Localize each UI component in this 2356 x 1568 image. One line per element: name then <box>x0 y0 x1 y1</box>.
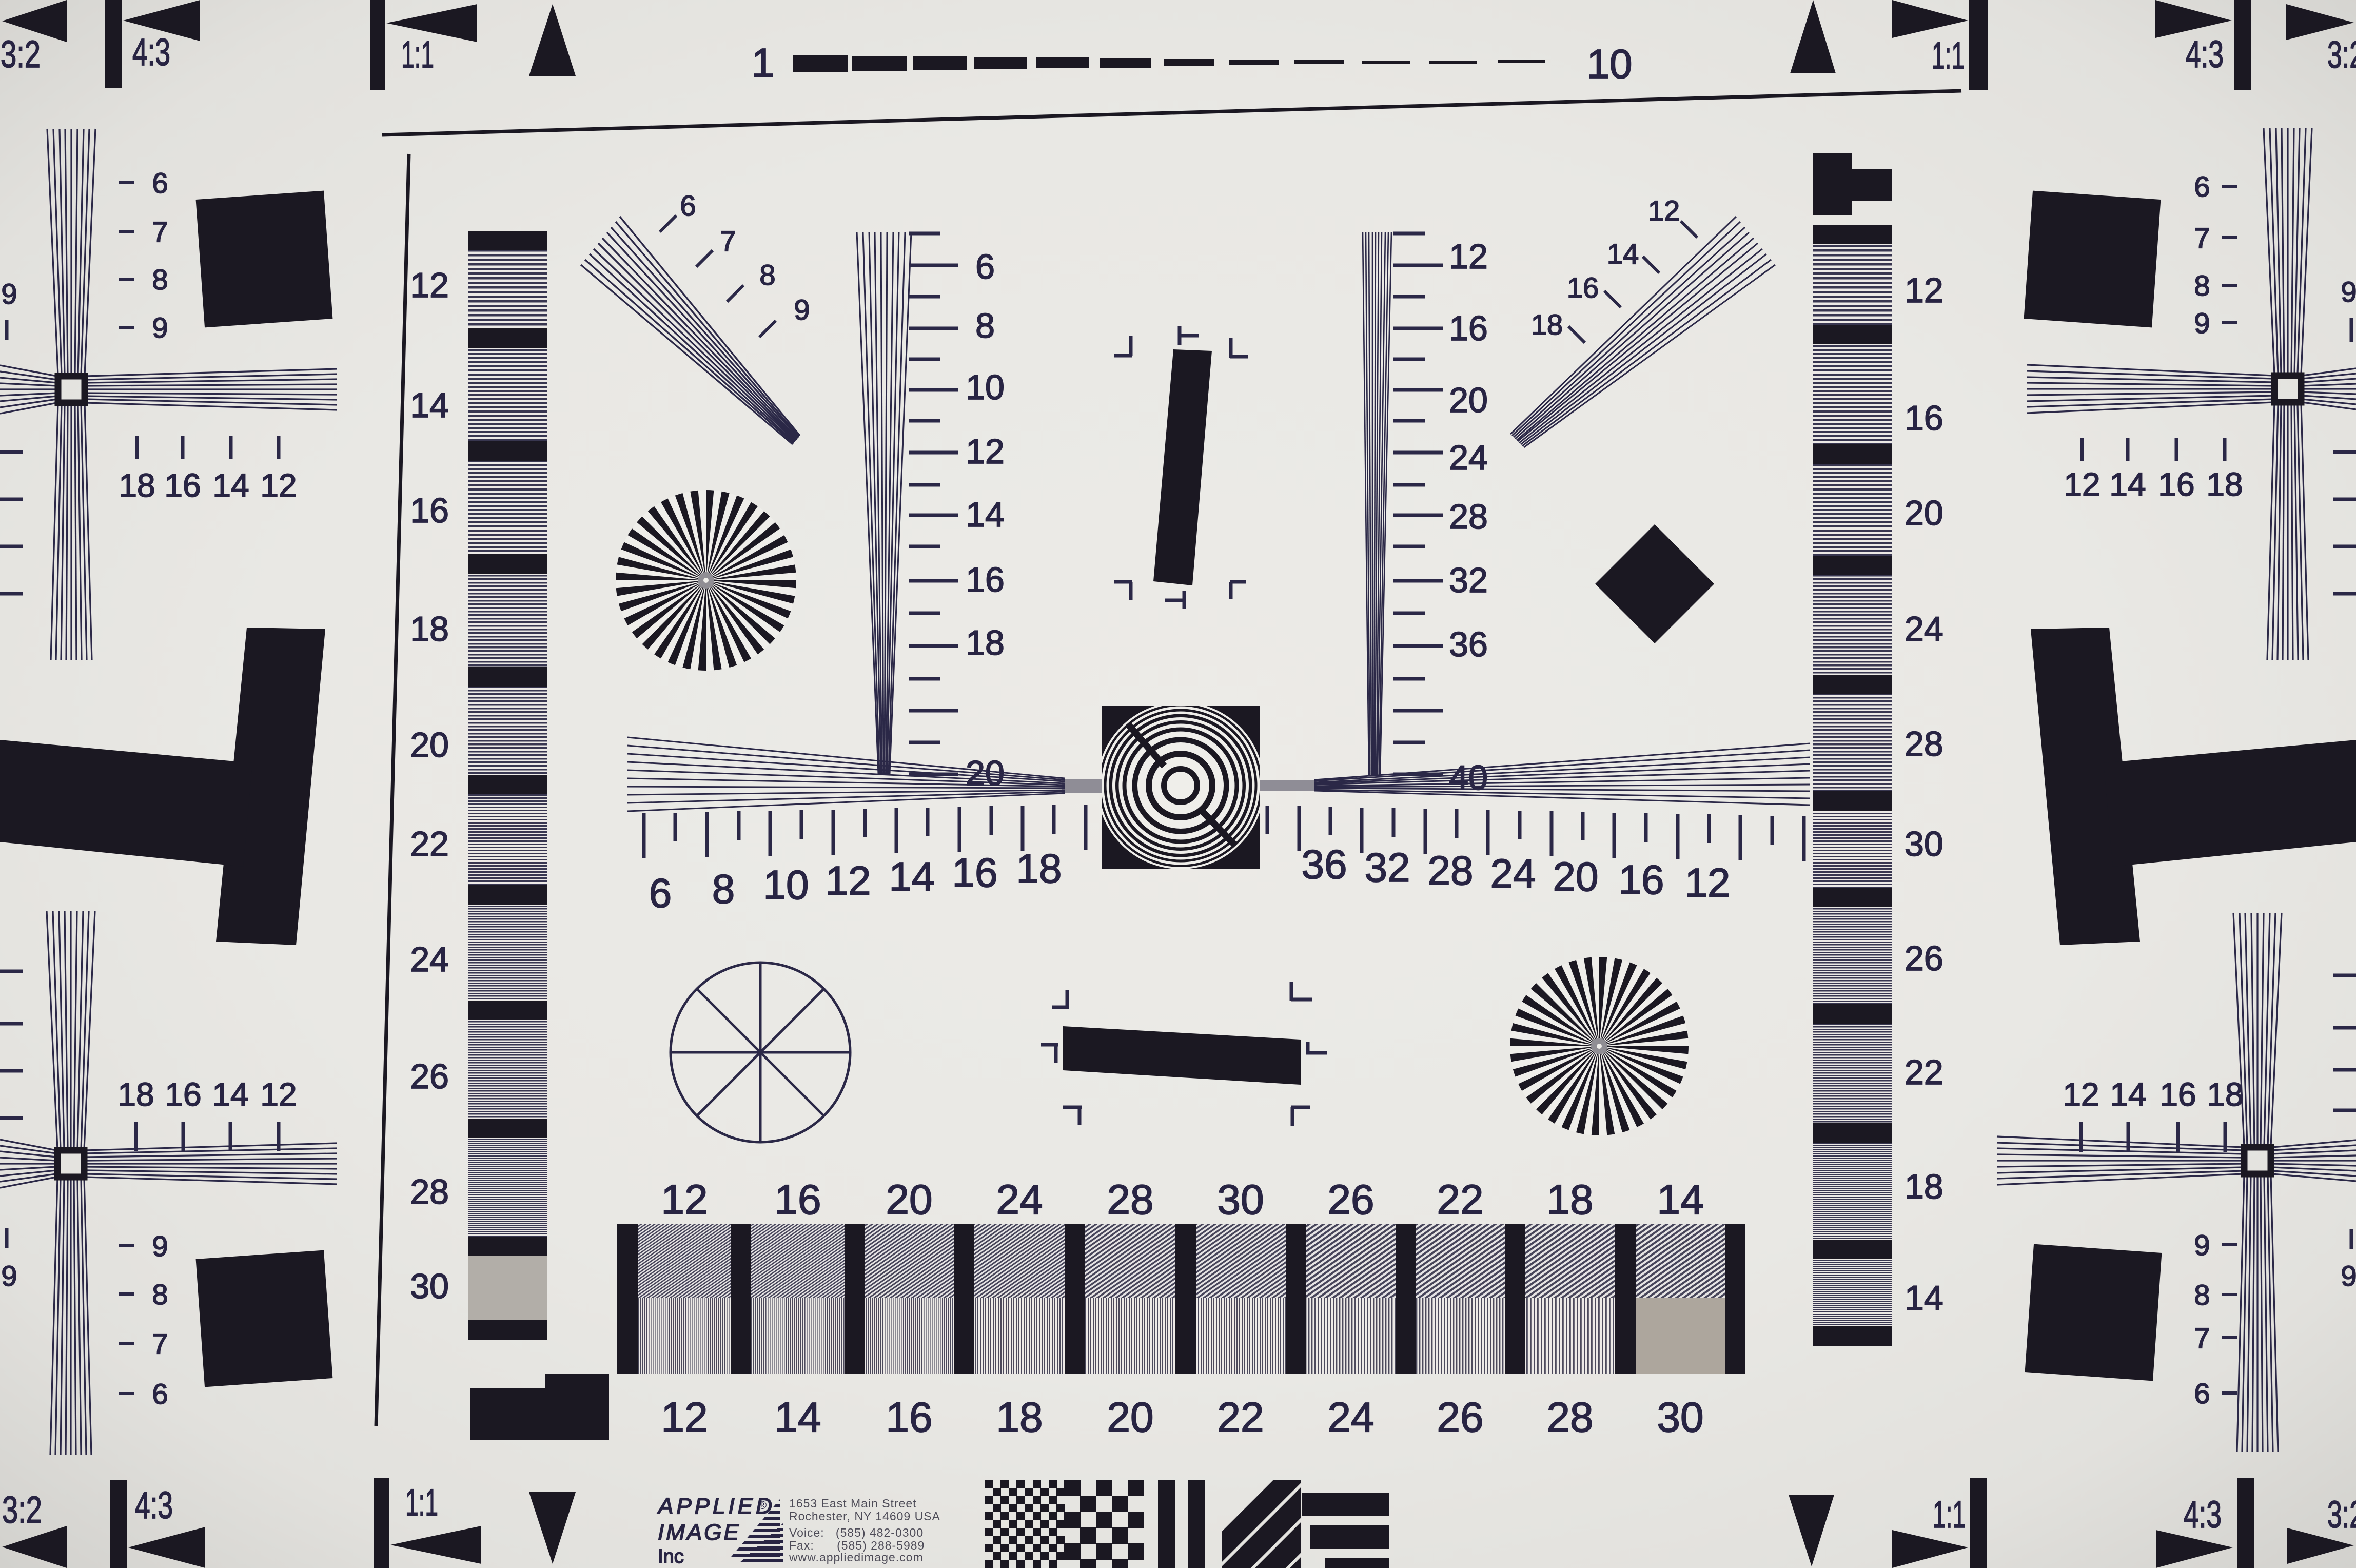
svg-text:26: 26 <box>1905 939 1943 978</box>
svg-text:14: 14 <box>212 1076 248 1113</box>
svg-text:30: 30 <box>410 1267 449 1306</box>
svg-text:14: 14 <box>1607 238 1639 270</box>
svg-text:7: 7 <box>720 225 736 257</box>
svg-text:8: 8 <box>975 306 995 345</box>
svg-text:9: 9 <box>152 311 168 344</box>
svg-text:14: 14 <box>1905 1279 1943 1318</box>
svg-text:24: 24 <box>996 1177 1043 1223</box>
svg-text:16: 16 <box>165 1076 201 1113</box>
svg-text:6: 6 <box>152 167 168 199</box>
svg-text:28: 28 <box>1449 497 1488 536</box>
svg-text:1: 1 <box>752 40 775 86</box>
svg-text:www.appliedimage.com: www.appliedimage.com <box>789 1551 924 1564</box>
svg-text:9: 9 <box>794 293 810 326</box>
svg-text:28: 28 <box>1428 848 1474 893</box>
svg-text:1653 East Main Street: 1653 East Main Street <box>789 1497 917 1510</box>
svg-text:18: 18 <box>119 467 155 504</box>
svg-text:18: 18 <box>410 610 449 649</box>
svg-text:36: 36 <box>1449 625 1488 664</box>
svg-text:16: 16 <box>886 1394 932 1441</box>
svg-text:APPLIED: APPLIED <box>657 1494 775 1519</box>
svg-text:22: 22 <box>1905 1053 1943 1092</box>
svg-text:4:3: 4:3 <box>132 31 170 73</box>
svg-text:9: 9 <box>2341 1260 2356 1292</box>
svg-text:18: 18 <box>1905 1167 1943 1206</box>
svg-text:10: 10 <box>763 862 809 908</box>
svg-text:12: 12 <box>1648 194 1680 227</box>
svg-text:16: 16 <box>2159 1076 2196 1113</box>
svg-text:30: 30 <box>1905 825 1943 864</box>
svg-text:28: 28 <box>1546 1394 1593 1441</box>
svg-text:30: 30 <box>1217 1177 1264 1223</box>
svg-text:6: 6 <box>152 1378 168 1410</box>
svg-text:20: 20 <box>886 1177 932 1223</box>
svg-text:16: 16 <box>774 1177 821 1223</box>
svg-text:24: 24 <box>1449 438 1488 477</box>
svg-text:7: 7 <box>152 1327 168 1360</box>
svg-text:9: 9 <box>2341 276 2356 308</box>
svg-text:12: 12 <box>2064 466 2100 503</box>
svg-text:24: 24 <box>1490 851 1536 896</box>
svg-text:20: 20 <box>410 726 449 765</box>
svg-text:Inc: Inc <box>658 1546 684 1567</box>
svg-text:28: 28 <box>410 1172 449 1211</box>
svg-text:3:2: 3:2 <box>1 33 41 75</box>
svg-text:9: 9 <box>2194 307 2210 339</box>
svg-text:14: 14 <box>410 386 449 425</box>
svg-text:22: 22 <box>1217 1394 1264 1441</box>
svg-text:8: 8 <box>2194 1279 2210 1311</box>
svg-text:18: 18 <box>2207 1076 2243 1113</box>
svg-text:12: 12 <box>1685 860 1731 906</box>
svg-text:Rochester, NY 14609 USA: Rochester, NY 14609 USA <box>789 1510 940 1523</box>
svg-text:32: 32 <box>1365 845 1410 890</box>
svg-text:18: 18 <box>2206 466 2243 503</box>
svg-text:12: 12 <box>410 266 449 305</box>
svg-text:16: 16 <box>164 467 201 504</box>
svg-text:24: 24 <box>410 940 449 979</box>
svg-text:9: 9 <box>1 1260 17 1292</box>
svg-text:3:2: 3:2 <box>2 1488 42 1531</box>
svg-text:®: ® <box>758 1499 767 1512</box>
svg-text:14: 14 <box>889 854 935 899</box>
svg-text:18: 18 <box>117 1076 154 1113</box>
svg-text:6: 6 <box>975 247 995 286</box>
svg-text:6: 6 <box>2194 170 2210 203</box>
svg-text:12: 12 <box>661 1394 708 1441</box>
svg-text:26: 26 <box>410 1057 449 1096</box>
svg-text:18: 18 <box>966 623 1005 662</box>
svg-text:18: 18 <box>996 1394 1043 1441</box>
svg-text:20: 20 <box>1553 854 1599 899</box>
svg-text:IMAGE: IMAGE <box>658 1520 741 1545</box>
svg-text:18: 18 <box>1016 846 1062 891</box>
svg-text:12: 12 <box>260 467 297 504</box>
svg-text:16: 16 <box>1449 309 1488 348</box>
svg-text:7: 7 <box>2194 222 2210 254</box>
svg-text:12: 12 <box>260 1076 297 1113</box>
svg-text:1:1: 1:1 <box>1933 1493 1966 1536</box>
svg-text:10: 10 <box>966 368 1005 407</box>
svg-text:6: 6 <box>680 189 696 222</box>
svg-text:28: 28 <box>1905 724 1943 763</box>
svg-text:3:2: 3:2 <box>2327 33 2356 76</box>
svg-text:30: 30 <box>1657 1394 1703 1441</box>
svg-text:20: 20 <box>1905 494 1943 533</box>
svg-text:14: 14 <box>774 1394 821 1441</box>
svg-text:12: 12 <box>2063 1076 2099 1113</box>
svg-text:16: 16 <box>410 491 449 530</box>
svg-text:6: 6 <box>649 870 672 916</box>
svg-text:36: 36 <box>1302 841 1347 887</box>
svg-text:24: 24 <box>1905 610 1943 649</box>
svg-text:1:1: 1:1 <box>1932 34 1965 77</box>
svg-text:8: 8 <box>712 866 735 912</box>
svg-text:7: 7 <box>152 215 168 248</box>
svg-text:8: 8 <box>152 1278 168 1310</box>
svg-text:16: 16 <box>2158 466 2194 503</box>
svg-text:6: 6 <box>2194 1377 2210 1409</box>
svg-text:14: 14 <box>966 495 1005 534</box>
svg-text:1:1: 1:1 <box>405 1481 438 1524</box>
svg-text:22: 22 <box>410 825 449 864</box>
svg-text:14: 14 <box>212 467 249 504</box>
svg-text:4:3: 4:3 <box>135 1484 173 1526</box>
svg-text:16: 16 <box>952 850 998 895</box>
svg-text:20: 20 <box>1107 1394 1153 1441</box>
svg-text:8: 8 <box>2194 269 2210 302</box>
svg-text:26: 26 <box>1327 1177 1374 1223</box>
svg-text:12: 12 <box>1905 271 1943 310</box>
svg-text:12: 12 <box>826 858 871 904</box>
svg-text:8: 8 <box>152 263 168 296</box>
svg-text:7: 7 <box>2194 1322 2210 1354</box>
svg-text:16: 16 <box>1567 271 1599 304</box>
svg-text:10: 10 <box>1587 41 1633 87</box>
svg-text:4:3: 4:3 <box>2186 33 2224 75</box>
svg-text:16: 16 <box>1619 857 1664 903</box>
svg-text:18: 18 <box>1546 1177 1593 1223</box>
svg-text:26: 26 <box>1437 1394 1483 1441</box>
svg-text:14: 14 <box>2110 1076 2146 1113</box>
svg-text:24: 24 <box>1327 1394 1374 1441</box>
svg-text:4:3: 4:3 <box>2184 1493 2222 1536</box>
svg-text:8: 8 <box>759 259 775 291</box>
svg-text:14: 14 <box>2109 466 2146 503</box>
svg-text:9: 9 <box>152 1230 168 1262</box>
svg-text:20: 20 <box>1449 381 1488 420</box>
svg-text:18: 18 <box>1531 308 1563 341</box>
svg-text:12: 12 <box>1449 237 1488 276</box>
svg-text:1:1: 1:1 <box>401 33 434 76</box>
svg-text:9: 9 <box>2194 1229 2210 1261</box>
svg-text:3:2: 3:2 <box>2327 1493 2356 1536</box>
svg-text:28: 28 <box>1107 1177 1153 1223</box>
svg-text:9: 9 <box>1 278 17 310</box>
svg-text:16: 16 <box>1905 399 1943 438</box>
svg-text:12: 12 <box>966 432 1005 471</box>
svg-text:32: 32 <box>1449 561 1488 600</box>
svg-text:16: 16 <box>966 560 1005 599</box>
svg-text:14: 14 <box>1657 1177 1703 1223</box>
svg-text:Voice: (585) 482-0300: Voice: (585) 482-0300 <box>789 1526 924 1539</box>
svg-text:12: 12 <box>661 1177 708 1223</box>
svg-text:22: 22 <box>1437 1177 1483 1223</box>
